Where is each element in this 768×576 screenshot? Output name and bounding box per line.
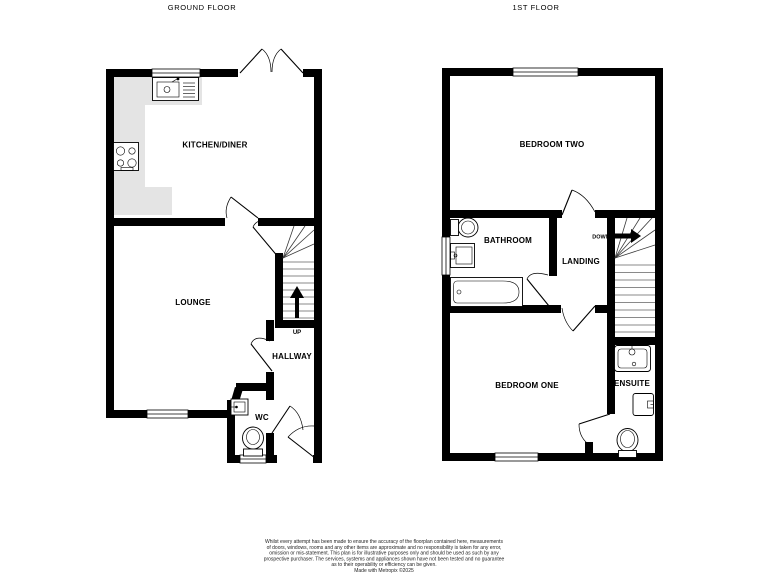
front-door xyxy=(288,426,315,458)
bedroom-one-label: BEDROOM ONE xyxy=(495,381,559,390)
disclaimer-text: Whilst every attempt has been made to en… xyxy=(264,539,505,574)
bedroom-one-door xyxy=(562,306,595,331)
kitchen-window xyxy=(152,69,200,77)
bathroom-label: BATHROOM xyxy=(484,236,532,245)
lounge-label: LOUNGE xyxy=(175,298,211,307)
wc-label: WC xyxy=(255,413,269,422)
down-label: DOWN xyxy=(592,235,609,241)
kitchen-door xyxy=(226,197,258,218)
bathroom-door xyxy=(527,273,549,306)
up-arrow xyxy=(290,286,304,318)
bedroom-two-window xyxy=(513,68,578,76)
bathtub xyxy=(451,278,523,307)
ensuite-sink xyxy=(615,346,651,372)
french-doors xyxy=(240,49,303,73)
first-floor-title: 1ST FLOOR xyxy=(513,3,560,12)
ground-floor-title: GROUND FLOOR xyxy=(168,3,236,12)
bathroom-sink xyxy=(451,244,475,268)
staircase-up: UP xyxy=(283,226,314,336)
bedroom-two-label: BEDROOM TWO xyxy=(520,140,585,149)
hob xyxy=(114,143,139,171)
up-label: UP xyxy=(293,330,301,336)
floorplan-page: GROUND FLOOR xyxy=(0,0,768,576)
kitchen-diner-label: KITCHEN/DINER xyxy=(182,141,247,150)
wc-toilet xyxy=(243,427,264,456)
stairs-door xyxy=(253,221,279,258)
landing-label: LANDING xyxy=(562,257,600,266)
bedroom-one-window xyxy=(495,453,538,461)
first-floor-plan: 1ST FLOOR xyxy=(442,3,663,461)
wc-sink xyxy=(231,399,248,415)
bathroom-toilet xyxy=(451,218,479,237)
ground-floor-plan: GROUND FLOOR xyxy=(106,3,322,463)
ensuite-shower xyxy=(633,394,654,416)
ensuite-door xyxy=(579,414,610,443)
floor-plan-svg: GROUND FLOOR xyxy=(0,0,768,576)
staircase-down: DOWN xyxy=(592,218,655,332)
disclaimer-credit: Made with Metropix ©2025 xyxy=(354,567,414,574)
hallway-label: HALLWAY xyxy=(272,352,312,361)
ensuite-toilet xyxy=(617,429,638,458)
kitchen-sink xyxy=(153,78,199,101)
lounge-window xyxy=(147,410,188,418)
bedroom-two-door xyxy=(562,190,595,215)
lounge-door xyxy=(251,338,272,371)
ensuite-label: ENSUITE xyxy=(614,379,651,388)
bathroom-window xyxy=(442,237,450,275)
